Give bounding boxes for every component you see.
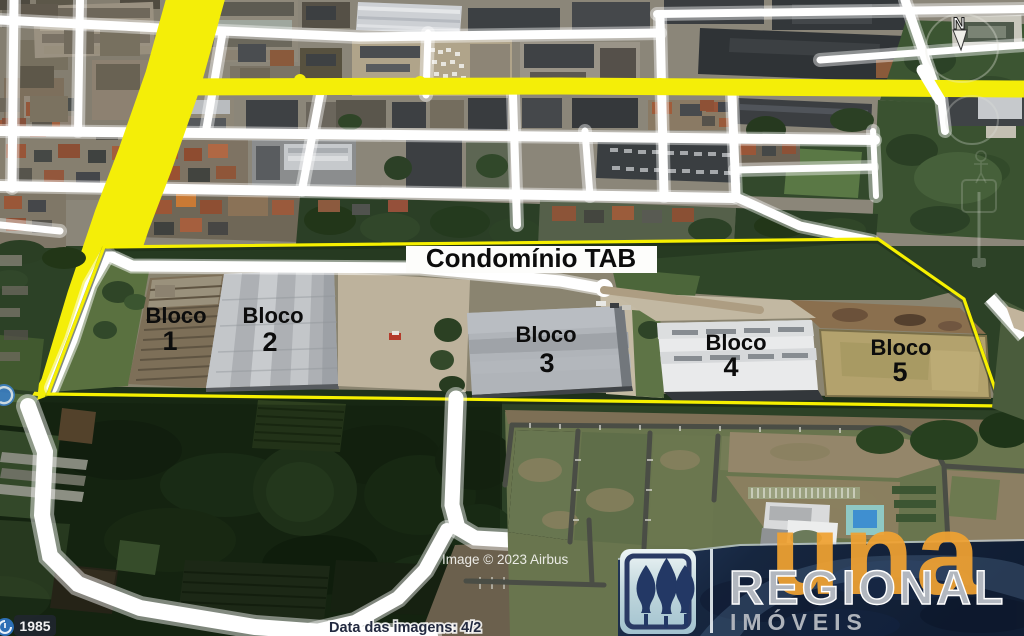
svg-text:Condomínio TAB: Condomínio TAB [426,243,636,273]
svg-text:1985: 1985 [19,618,50,634]
svg-text:2: 2 [262,327,277,357]
svg-text:Bloco: Bloco [242,303,303,328]
svg-text:1: 1 [162,326,177,356]
svg-text:5: 5 [892,357,907,387]
svg-text:Bloco: Bloco [145,303,206,328]
svg-text:Data das imagens: 4/2: Data das imagens: 4/2 [329,620,481,636]
svg-text:Image © 2023 Airbus: Image © 2023 Airbus [442,552,569,567]
svg-text:N: N [953,14,965,33]
svg-text:3: 3 [539,348,554,378]
svg-text:Bloco: Bloco [515,322,576,347]
svg-text:4: 4 [723,352,738,382]
svg-text:REGIONAL: REGIONAL [729,562,1006,615]
svg-text:IMÓVEIS: IMÓVEIS [730,608,868,635]
